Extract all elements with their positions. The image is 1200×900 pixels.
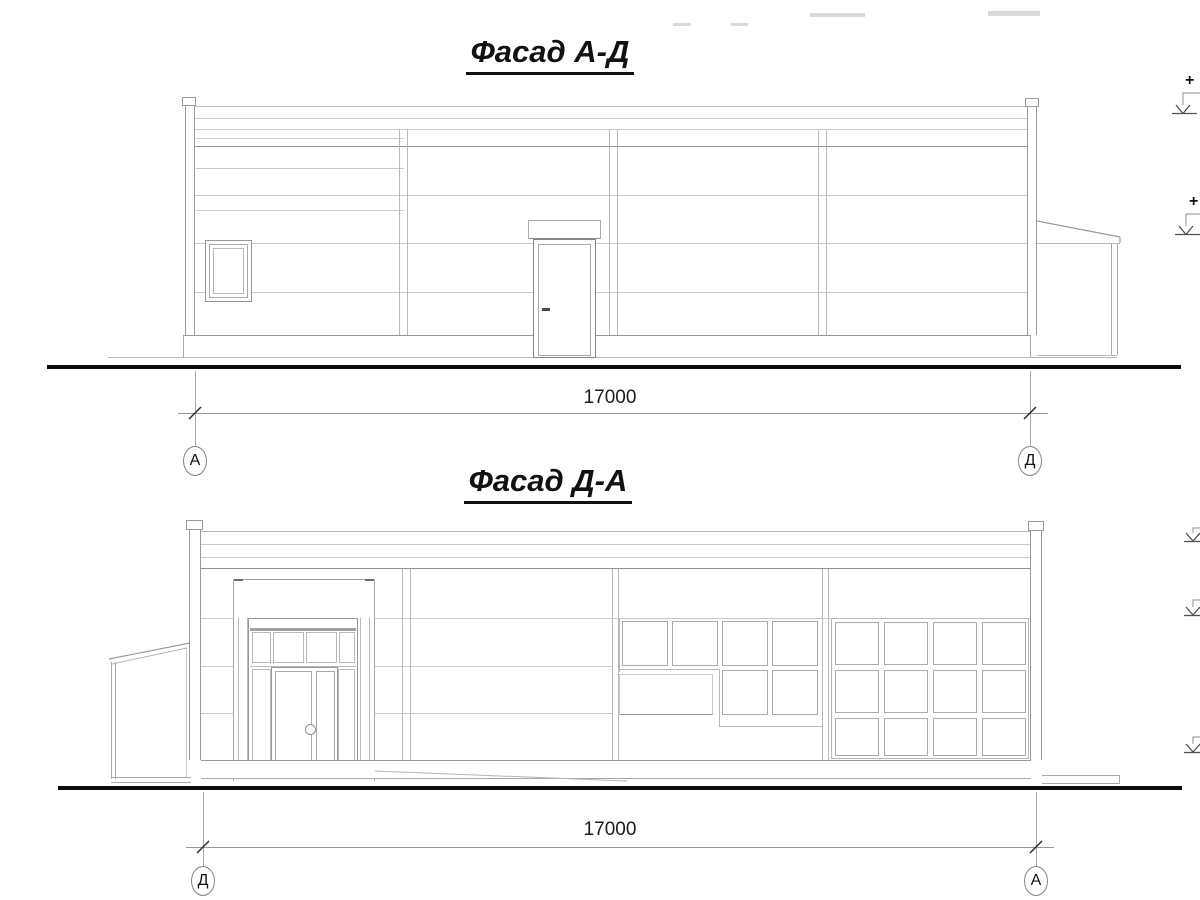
window-pane (213, 248, 244, 294)
plinth (183, 335, 1031, 357)
parapet-line (201, 531, 1030, 532)
vertical-joint (609, 130, 618, 335)
window (982, 622, 1026, 665)
portal-pilaster (360, 618, 370, 779)
window-group-frame (822, 618, 823, 726)
annex-fascia-line (1037, 243, 1120, 244)
elevation-mark-plus: + (1185, 72, 1194, 90)
facade-da-title: Фасад Д-А (398, 463, 698, 504)
transom-pane (273, 632, 304, 663)
door-handle (305, 724, 316, 735)
panel-joint-line (196, 210, 404, 211)
drawing-sheet: Фасад А-Д (0, 0, 1200, 900)
dimension-value: 17000 (460, 819, 760, 841)
vertical-joint (402, 569, 411, 760)
column-cap (1028, 521, 1044, 531)
window (772, 670, 818, 715)
panel-joint-line (201, 713, 233, 714)
portal-corner-tick (365, 579, 374, 581)
elevation-mark-plus: + (1189, 193, 1198, 211)
window (835, 670, 879, 713)
fascia-line (201, 544, 1030, 545)
transom-pane (306, 632, 337, 663)
extension-line (195, 371, 196, 447)
window-group-frame (719, 669, 720, 726)
column-cap (186, 520, 203, 530)
extension-line (203, 792, 204, 867)
dimension-line (186, 847, 1054, 848)
transom-pane (252, 632, 271, 663)
fascia-line (195, 118, 1027, 119)
axis-bubble-a: А (1024, 866, 1048, 896)
window (933, 718, 977, 756)
facade-ad-view: Фасад А-Д (0, 0, 1200, 450)
base-line (108, 357, 1117, 358)
annex-edge-line (186, 648, 187, 777)
dimension-value: 17000 (460, 387, 760, 409)
window (672, 621, 718, 666)
window (722, 621, 768, 666)
door-leaf (538, 244, 591, 356)
axis-bubble-d: Д (191, 866, 215, 896)
wall-panel (619, 674, 713, 715)
annex-base (111, 777, 191, 783)
window (884, 670, 928, 713)
base-strip (1042, 775, 1120, 784)
vertical-joint (818, 130, 827, 335)
transom-header (250, 628, 356, 631)
window-group-frame (619, 669, 719, 670)
extension-line (1036, 792, 1037, 867)
window (835, 622, 879, 665)
column-cap (182, 97, 196, 106)
column-cap (1025, 98, 1039, 107)
window (622, 621, 668, 666)
annex-base-line (1037, 355, 1117, 356)
window (884, 718, 928, 756)
window (884, 622, 928, 665)
transom-pane (339, 632, 355, 663)
window (982, 670, 1026, 713)
vertical-joint (612, 569, 619, 760)
facade-da-title-text: Фасад Д-А (464, 463, 633, 504)
window (722, 670, 768, 715)
ground-line (58, 786, 1182, 790)
annex-wall (111, 662, 116, 779)
fascia-line (201, 557, 1030, 558)
plinth (201, 760, 1031, 779)
dimension-line (178, 413, 1048, 414)
window (933, 670, 977, 713)
parapet-line (195, 106, 1027, 107)
vertical-joint (399, 130, 408, 335)
panel-joint-line (196, 138, 404, 139)
column-axis-d (1027, 107, 1037, 335)
window-group-frame (719, 726, 823, 727)
door-canopy (528, 220, 601, 239)
annex-post (1111, 243, 1118, 355)
portal-pilaster (238, 618, 248, 779)
window (835, 718, 879, 756)
facade-ad-title: Фасад А-Д (400, 34, 700, 75)
door-handle (542, 308, 550, 311)
column-axis-d (189, 530, 201, 760)
panel-joint-line (196, 168, 404, 169)
extension-line (1030, 371, 1031, 447)
axis-letter: А (1031, 872, 1042, 890)
window (982, 718, 1026, 756)
vertical-joint (822, 569, 829, 760)
portal-corner-tick (234, 579, 243, 581)
facade-ad-title-text: Фасад А-Д (466, 34, 635, 75)
axis-letter: Д (198, 872, 209, 890)
column-axis-a (1030, 531, 1042, 760)
ground-line (47, 365, 1181, 369)
window (933, 622, 977, 665)
window-group-frame (619, 618, 620, 672)
column-axis-a (185, 106, 195, 335)
panel-joint-line (201, 666, 233, 667)
window (772, 621, 818, 666)
